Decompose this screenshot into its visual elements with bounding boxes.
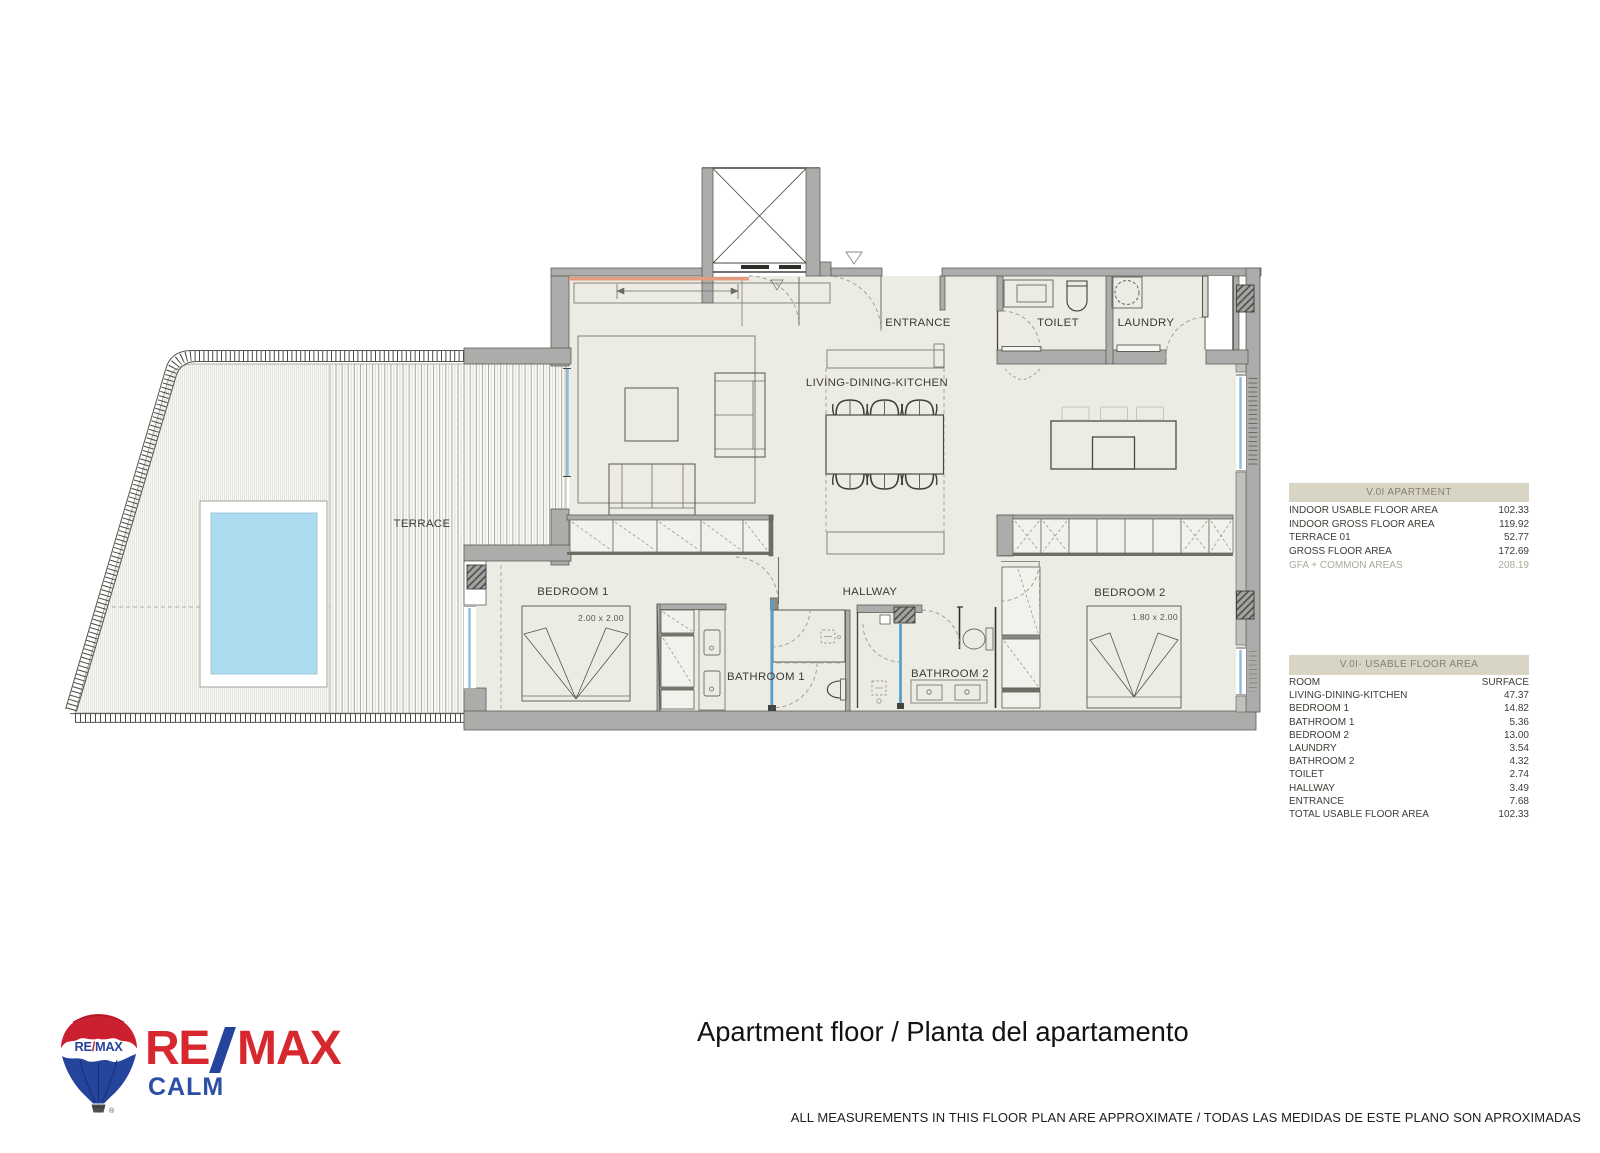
svg-text:LIVING-DINING-KITCHEN: LIVING-DINING-KITCHEN xyxy=(806,377,948,389)
svg-text:BEDROOM 1: BEDROOM 1 xyxy=(537,586,609,598)
svg-text:LAUNDRY: LAUNDRY xyxy=(1118,317,1175,329)
svg-text:RE/MAX: RE/MAX xyxy=(75,1039,124,1054)
svg-text:BEDROOM 2: BEDROOM 2 xyxy=(1094,587,1166,599)
svg-text:®: ® xyxy=(109,1107,115,1115)
svg-text:TOILET: TOILET xyxy=(1037,317,1079,329)
svg-text:ENTRANCE: ENTRANCE xyxy=(885,317,951,329)
svg-text:BATHROOM 2: BATHROOM 2 xyxy=(911,668,989,680)
svg-text:TERRACE: TERRACE xyxy=(394,518,451,530)
svg-text:1.80 x 2.00: 1.80 x 2.00 xyxy=(1132,612,1178,622)
svg-text:2.00 x 2.00: 2.00 x 2.00 xyxy=(578,613,624,623)
svg-text:HALLWAY: HALLWAY xyxy=(843,586,898,598)
svg-text:BATHROOM 1: BATHROOM 1 xyxy=(727,671,805,683)
